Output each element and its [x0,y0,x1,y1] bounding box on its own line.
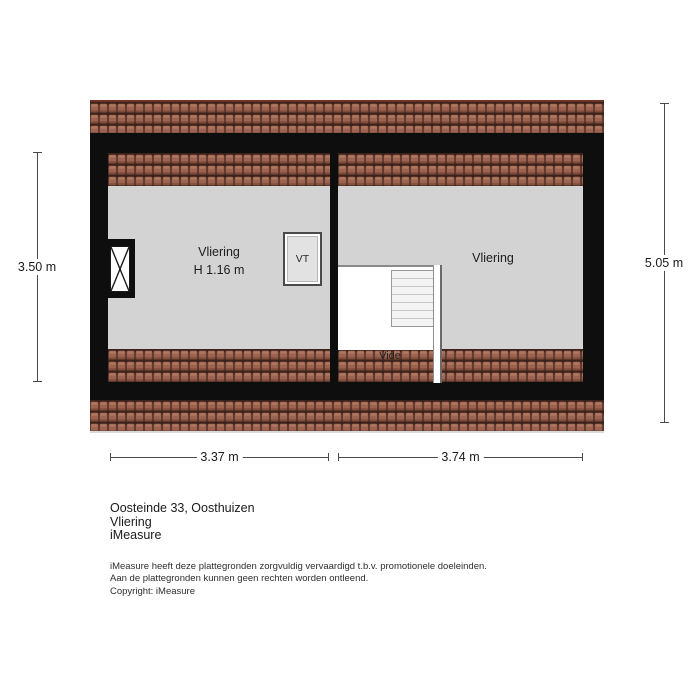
plan-title-block: Oosteinde 33, Oosthuizen Vliering iMeasu… [110,502,255,543]
floor-name: Vliering [110,516,255,530]
dimension-value: 3.37 m [196,449,242,465]
dimension-tick [33,152,42,153]
stair-railing [433,265,442,383]
roof-tiles-strip-bottom [90,400,604,433]
address: Oosteinde 33, Oosthuizen [110,502,255,516]
disclaimer: iMeasure heeft deze plattegronden zorgvu… [110,561,487,598]
roof-slope-tiles [338,153,583,186]
dimension-tick [33,381,42,382]
dimension-value: 3.50 m [14,259,60,275]
vt-hatch: VT [283,232,322,286]
dimension-tick [660,422,669,423]
dimension-value: 3.74 m [437,449,483,465]
roof-slope-tiles [108,349,330,382]
disclaimer-line: Aan de plattegronden kunnen geen rechten… [110,573,487,585]
disclaimer-line: iMeasure heeft deze plattegronden zorgvu… [110,561,487,573]
staircase [391,270,433,327]
chimney-x-icon [110,246,130,292]
dimension-value: 5.05 m [641,255,687,271]
dimension-tick [582,453,583,461]
dimension-tick [110,453,111,461]
dimension-tick [660,103,669,104]
floorplan: Vliering H 1.16 m Vliering VT Vide [90,100,604,433]
roof-slope-tiles [108,153,330,186]
vide-label: Vide [338,350,442,362]
disclaimer-line: Copyright: iMeasure [110,586,487,598]
vt-label: VT [296,253,309,265]
roof-tiles-strip-top [90,100,604,133]
dimension-tick [338,453,339,461]
brand: iMeasure [110,529,255,543]
chimney-shaft [105,239,135,298]
dimension-tick [328,453,329,461]
